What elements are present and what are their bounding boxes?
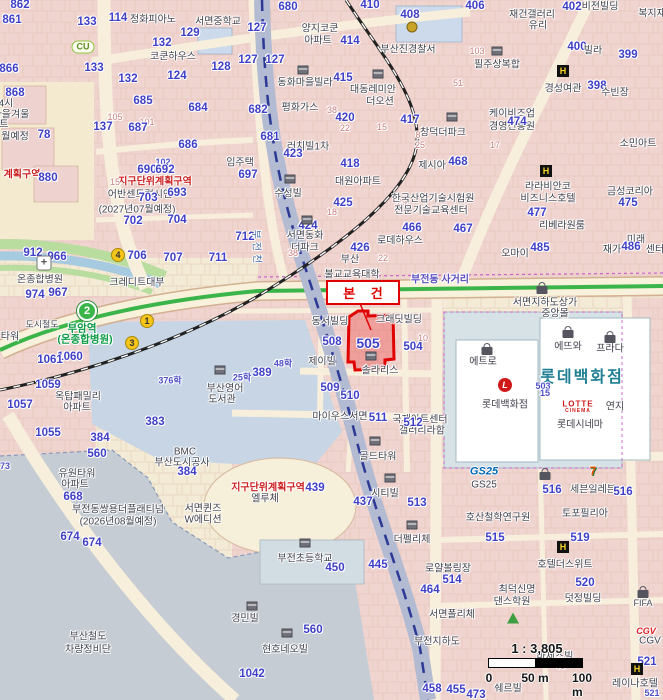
scale-tick-50: 50 m — [521, 671, 548, 685]
scale-bar-black-half — [535, 659, 582, 667]
scale-ratio: 1 : 3,805 — [483, 641, 591, 656]
map-graphics — [0, 0, 663, 700]
scale-bar-graphic — [488, 658, 583, 668]
scale-bar: 1 : 3,805 0 50 m 100 m — [483, 641, 591, 666]
map-canvas[interactable]: 862861133114정화피아노서면중학교129132코쿤하우스8661331… — [0, 0, 663, 700]
scale-tick-0: 0 — [486, 671, 493, 685]
lotte-main-building — [540, 318, 650, 460]
elementary-school-block — [260, 540, 364, 584]
subject-parcel-505 — [348, 311, 394, 370]
lotte-department-store-building — [456, 340, 538, 462]
subject-parcel-callout-label: 본 건 — [337, 283, 389, 302]
subject-parcel-callout: 본 건 — [326, 280, 400, 305]
district-parcel-area — [204, 458, 356, 554]
scale-tick-100: 100 m — [572, 671, 592, 699]
